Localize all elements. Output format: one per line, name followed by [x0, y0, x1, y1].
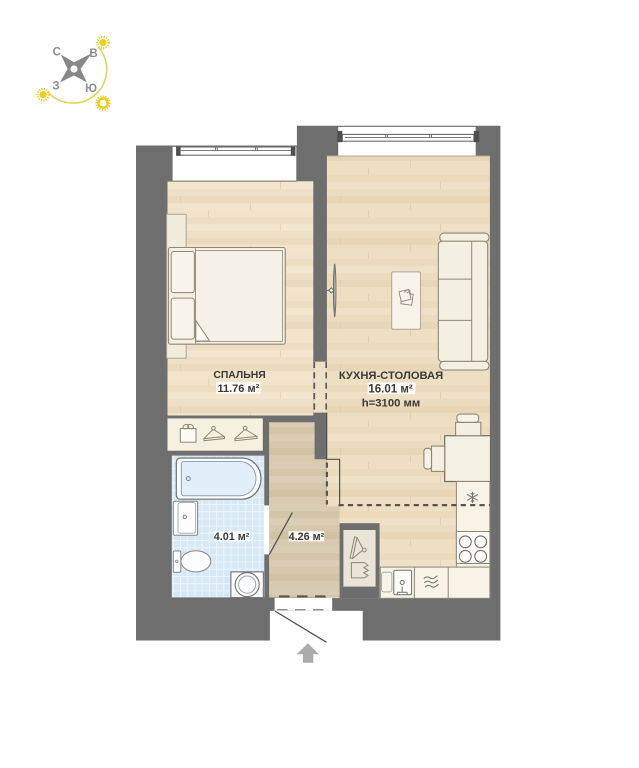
svg-text:4.26 м²: 4.26 м² — [289, 531, 325, 543]
svg-text:КУХНЯ-СТОЛОВАЯ: КУХНЯ-СТОЛОВАЯ — [339, 370, 443, 382]
svg-text:11.76 м²: 11.76 м² — [218, 383, 260, 395]
svg-text:В: В — [89, 48, 97, 60]
svg-text:16.01 м²: 16.01 м² — [368, 383, 412, 395]
svg-text:h=3100 мм: h=3100 мм — [362, 397, 420, 409]
svg-text:Ю: Ю — [85, 83, 97, 95]
svg-text:4.01 м²: 4.01 м² — [214, 531, 250, 543]
svg-text:СПАЛЬНЯ: СПАЛЬНЯ — [213, 370, 265, 381]
svg-text:З: З — [52, 81, 59, 93]
svg-text:С: С — [53, 46, 61, 58]
